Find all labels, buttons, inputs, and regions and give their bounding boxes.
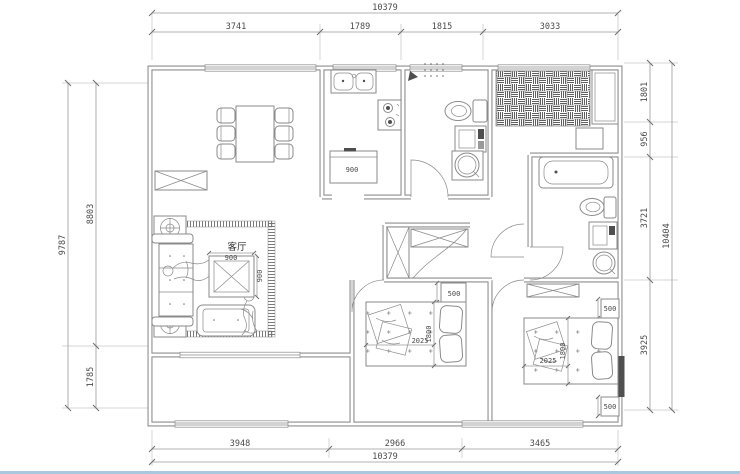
dining-table <box>236 106 274 162</box>
balcony-box <box>576 128 603 149</box>
dimension-left: 9787 8803 1785 <box>58 80 99 411</box>
bath2-cabinet <box>589 222 617 249</box>
toilet-1 <box>445 100 487 122</box>
dining-cabinet <box>155 171 207 190</box>
kitchen-sink <box>331 70 376 93</box>
dim-left-seg2: 1785 <box>86 367 96 387</box>
floor-plan-svg: 10379 3741 1789 1815 3033 3948 2966 3465… <box>0 0 740 474</box>
wall-feature-bar <box>619 356 625 397</box>
dimension-bottom: 3948 2966 3465 10379 <box>149 439 621 465</box>
kitchen: 900 <box>330 70 401 183</box>
nightstand-2-bottom-dim: 500 <box>604 403 617 411</box>
dimension-top: 10379 3741 1789 1815 3033 <box>149 3 621 35</box>
round-basin <box>593 252 615 274</box>
window-balcony-top <box>498 65 590 71</box>
window-dining-top <box>205 65 316 71</box>
bed-1-length: 2025 <box>412 337 429 345</box>
bathroom-2 <box>539 157 617 274</box>
bedroom-1: 500 1800 2025 <box>364 281 466 368</box>
bed-2 <box>524 318 618 384</box>
nightstand-2-top: 500 <box>596 297 619 320</box>
tile-floor <box>496 71 590 126</box>
door-corridor <box>491 224 524 257</box>
window-bedroom-bottom <box>462 421 583 427</box>
bath1-cabinet <box>455 126 486 152</box>
bedroom2-cabinet <box>527 284 579 297</box>
toilet-2 <box>580 197 616 218</box>
door-bath1 <box>411 160 448 197</box>
dim-right-total: 10404 <box>662 223 672 249</box>
dim-bottom-seg2: 2966 <box>385 439 405 449</box>
dining-room <box>155 106 293 190</box>
bathtub <box>539 157 613 188</box>
living-room-label: 客厅 <box>227 241 247 253</box>
dim-right-seg2: 956 <box>640 131 650 146</box>
dim-left-seg1: 8803 <box>86 204 96 224</box>
hallway-closet <box>387 227 468 278</box>
bed-1 <box>366 302 466 366</box>
nightstand-1-dim: 500 <box>448 290 461 298</box>
door-bedroom2 <box>492 280 524 312</box>
kitchen-unit-dim: 900 <box>346 166 359 174</box>
door-bath2 <box>530 247 563 280</box>
kitchen-stove <box>378 100 401 130</box>
bed-2-width: 1800 <box>559 343 567 360</box>
bedroom-2: 500 1800 2025 500 <box>522 284 625 418</box>
dim-bottom-seg1: 3948 <box>230 439 250 449</box>
dim-bottom-total: 10379 <box>372 452 398 462</box>
dim-top-total: 10379 <box>372 3 398 13</box>
laundry-balcony <box>496 70 618 149</box>
dimension-right: 1801 956 3721 3925 10404 <box>640 60 675 413</box>
dim-top-seg3: 1815 <box>432 22 452 32</box>
dim-top-seg2: 1789 <box>350 22 370 32</box>
dim-left-total: 9787 <box>58 235 68 255</box>
closet-box-horizontal <box>411 229 468 247</box>
window-balcony-bottom <box>175 421 288 427</box>
dim-top-seg1: 3741 <box>226 22 246 32</box>
dim-right-seg1: 1801 <box>640 82 650 102</box>
nightstand-2-top-dim: 500 <box>604 305 617 313</box>
kitchen-fridge: 900 <box>330 148 377 183</box>
coffee-table <box>209 256 254 297</box>
washing-machine <box>452 151 483 180</box>
sofa <box>152 234 193 326</box>
floor-plan-canvas: 10379 3741 1789 1815 3033 3948 2966 3465… <box>0 0 740 474</box>
dim-bottom-seg3: 3465 <box>530 439 550 449</box>
dim-right-seg3: 3721 <box>640 208 650 228</box>
bathroom-1 <box>408 63 487 180</box>
sliding-door-balcony <box>180 352 300 358</box>
dim-right-seg4: 3925 <box>640 335 650 355</box>
coffee-table-width: 900 <box>225 254 238 262</box>
window-bath-top <box>410 65 462 71</box>
coffee-table-depth: 900 <box>256 270 264 283</box>
nightstand-2-bottom: 500 <box>596 395 619 418</box>
bed-2-length: 2025 <box>540 357 557 365</box>
balcony-cabinet <box>592 70 618 124</box>
living-room: 客厅 900 900 <box>152 216 275 337</box>
nightstand-1: 500 <box>435 281 466 304</box>
closet-box-vertical <box>387 227 409 278</box>
dim-top-seg4: 3033 <box>540 22 560 32</box>
